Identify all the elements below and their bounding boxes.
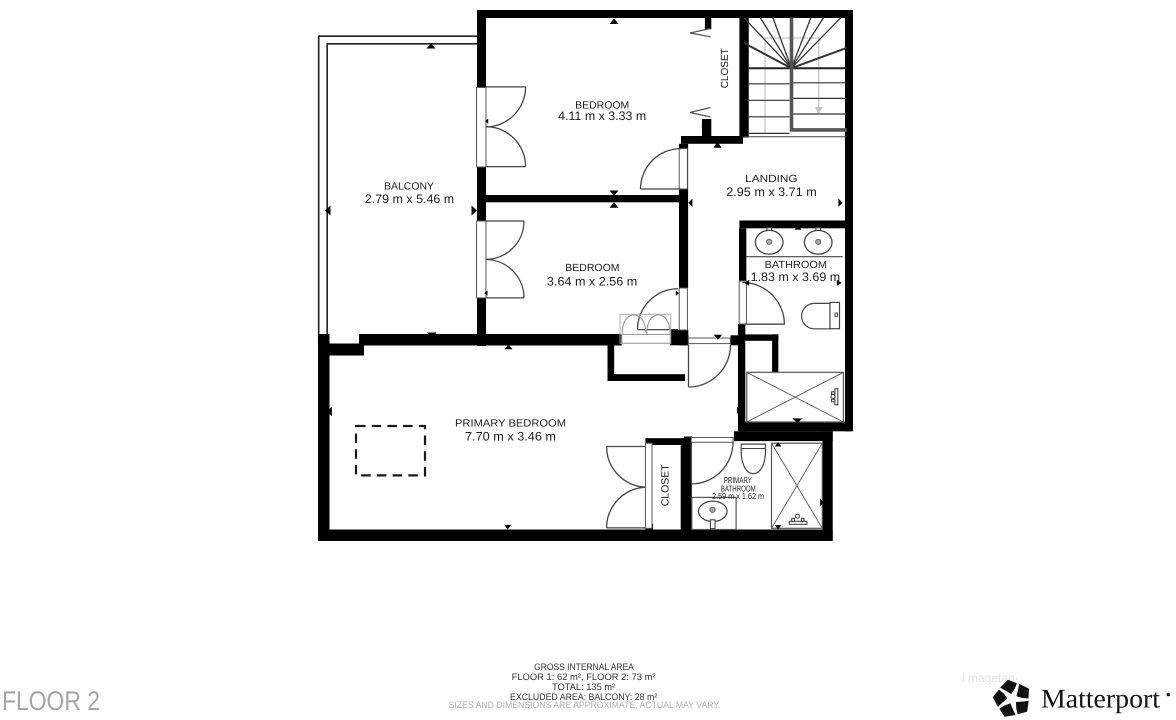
svg-text:FLOOR 2: FLOOR 2 — [2, 686, 100, 716]
svg-text:CLOSET: CLOSET — [720, 48, 731, 89]
svg-text:4.11 m x 3.33 m: 4.11 m x 3.33 m — [558, 109, 646, 123]
svg-text:2.95 m x 3.71 m: 2.95 m x 3.71 m — [726, 185, 817, 199]
svg-text:BALCONY: BALCONY — [384, 182, 434, 193]
svg-text:2.79 m x 5.46 m: 2.79 m x 5.46 m — [365, 192, 454, 206]
svg-text:7.70 m x 3.46 m: 7.70 m x 3.46 m — [465, 429, 556, 443]
svg-text:PRIMARY BEDROOM: PRIMARY BEDROOM — [455, 419, 566, 430]
svg-text:SIZES AND DIMENSIONS ARE APPRO: SIZES AND DIMENSIONS ARE APPROXIMATE, AC… — [449, 699, 721, 710]
svg-text:BEDROOM: BEDROOM — [565, 263, 619, 274]
svg-text:Matterport: Matterport — [1041, 684, 1161, 714]
svg-text:2.59 m x 1.62 m: 2.59 m x 1.62 m — [712, 491, 764, 501]
svg-text:LANDING: LANDING — [745, 174, 797, 185]
svg-text:3.64 m x 2.56 m: 3.64 m x 2.56 m — [547, 275, 637, 289]
svg-text:CLOSET: CLOSET — [661, 464, 672, 507]
svg-text:1.83 m x 3.69 m: 1.83 m x 3.69 m — [751, 270, 841, 284]
